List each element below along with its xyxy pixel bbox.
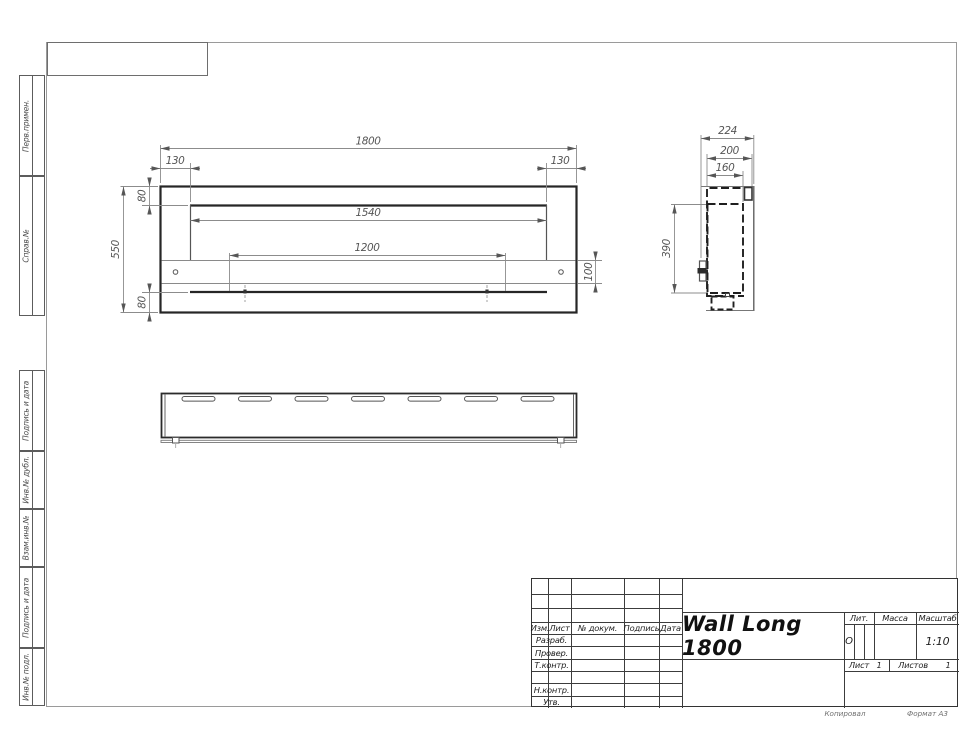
margin-label-col: Подпись и дата — [20, 371, 33, 450]
margin-label: Взам.инв.№ — [22, 516, 31, 561]
margin-label: Справ.№ — [22, 229, 31, 262]
col-header-date: Дата — [659, 622, 682, 634]
lit-value: О — [844, 624, 854, 659]
row-ncontrol: Н.контр. — [532, 683, 571, 696]
scale-value: 1:10 — [916, 624, 959, 659]
margin-label: Перв.примен. — [22, 99, 31, 151]
title-block: Изм. Лист № докум. Подпись Дата Разраб. … — [531, 578, 958, 707]
margin-box-vzam-inv: Взам.инв.№ — [19, 509, 45, 567]
margin-label: Инв.№ подл. — [22, 653, 31, 701]
margin-label: Инв.№ дубл. — [22, 456, 31, 503]
margin-box-sprav-no: Справ.№ — [19, 176, 45, 316]
row-tcontrol: Т.контр. — [532, 659, 571, 671]
col-header-sign: Подпись — [624, 622, 659, 634]
row-approved: Утв. — [532, 696, 571, 708]
margin-box-perv-primen: Перв.примен. — [19, 75, 45, 176]
sheet-value: 1 — [872, 659, 886, 671]
margin-label: Подпись и дата — [22, 380, 31, 440]
margin-box-inv-podl: Инв.№ подл. — [19, 648, 45, 706]
product-name: Wall Long 1800 — [682, 612, 844, 659]
col-header-list: Лист — [548, 622, 571, 634]
col-header-izm: Изм. — [532, 622, 548, 634]
margin-label-col: Инв.№ дубл. — [20, 452, 33, 508]
col-header-doc: № докум. — [571, 622, 624, 634]
copied-by-note: Копировал — [810, 709, 880, 718]
drawing-sheet: 1800 130 130 1540 — [0, 0, 970, 749]
lit-header: Лит. — [844, 612, 874, 624]
margin-label: Подпись и дата — [22, 577, 31, 637]
margin-label-col: Инв.№ подл. — [20, 649, 33, 705]
designation-box-rotated — [47, 42, 208, 76]
mass-header: Масса — [874, 612, 916, 624]
margin-label-col: Справ.№ — [20, 177, 33, 315]
margin-label-col: Подпись и дата — [20, 568, 33, 647]
scale-header: Масштаб — [916, 612, 959, 624]
margin-label-col: Перв.примен. — [20, 76, 33, 175]
margin-box-podpis-data-2: Подпись и дата — [19, 567, 45, 648]
margin-box-inv-dubl: Инв.№ дубл. — [19, 451, 45, 509]
row-checked: Провер. — [532, 646, 571, 659]
sheets-label: Листов — [891, 659, 935, 671]
sheet-label: Лист — [846, 659, 872, 671]
row-developed: Разраб. — [532, 634, 571, 646]
format-note: Формат А3 — [895, 709, 960, 718]
sheets-value: 1 — [940, 659, 956, 671]
margin-box-podpis-data-1: Подпись и дата — [19, 370, 45, 451]
margin-label-col: Взам.инв.№ — [20, 510, 33, 566]
